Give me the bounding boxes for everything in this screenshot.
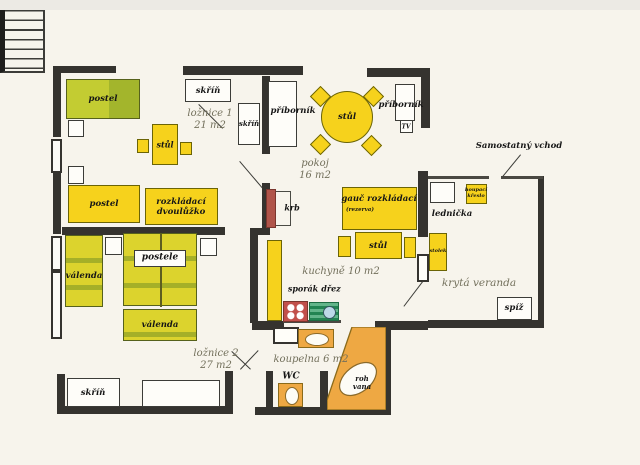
label-skrin-bottom: skříň xyxy=(81,388,106,398)
label-postel-1: postel xyxy=(89,94,118,104)
wall-3 xyxy=(51,139,62,173)
wall-1 xyxy=(53,66,116,73)
double-bed-postele-divider xyxy=(160,234,162,307)
wall-16 xyxy=(250,230,258,323)
corner-bath-host xyxy=(327,327,386,410)
floor-plan: postelskříňložnice 121 m2skříňpříborníks… xyxy=(0,0,640,465)
veranda-door-leaf xyxy=(417,254,429,282)
fireplace-krb xyxy=(266,189,276,228)
wall-5 xyxy=(51,236,62,271)
bathroom-door-leaf xyxy=(273,327,299,344)
toilet-bowl xyxy=(278,383,303,407)
label-stul-loznice1: stůl xyxy=(156,140,173,149)
stove-sporak xyxy=(283,301,308,322)
chair-1 xyxy=(137,139,149,153)
kitchen-counter xyxy=(267,240,282,321)
scan-edge-strip xyxy=(0,0,640,10)
label-postel-2: postel xyxy=(90,199,119,209)
nightstand-2 xyxy=(68,166,84,184)
wall-9 xyxy=(225,371,233,414)
label-sporak: sporák xyxy=(288,284,318,293)
label-rezerva: (rezerva) xyxy=(346,207,374,213)
label-pribornik-2: příborník xyxy=(378,100,423,110)
wall-2 xyxy=(53,66,61,137)
wall-28 xyxy=(501,176,543,179)
chair-diamond-3 xyxy=(310,134,331,155)
entrance-arrow xyxy=(502,154,521,177)
label-stul-round: stůl xyxy=(338,112,356,122)
washbasin-bowl xyxy=(305,333,329,346)
double-bed-postele xyxy=(123,233,197,306)
nightstand-3 xyxy=(105,237,122,255)
wall-22 xyxy=(418,171,428,237)
wall-27 xyxy=(428,176,489,179)
label-wc: WC xyxy=(282,372,299,383)
hall-kitchen-door-swing xyxy=(239,161,263,189)
label-kryta-veranda: krytá veranda xyxy=(442,277,516,289)
label-koupelna: koupelna 6 m2 xyxy=(273,354,348,366)
chair-3 xyxy=(338,236,351,257)
label-stul-living: stůl xyxy=(369,241,387,251)
label-pribornik-1: příborník xyxy=(270,106,315,116)
label-houpaci: houpacíkřeslo xyxy=(465,188,487,200)
storage-box xyxy=(142,380,220,407)
label-tv: TV xyxy=(401,123,410,130)
label-skrin-vertical: skříň xyxy=(239,120,259,128)
label-pokoj: pokoj16 m2 xyxy=(299,158,331,182)
sink-drez xyxy=(309,302,339,321)
nightstand-4 xyxy=(200,238,217,256)
label-drez: dřez xyxy=(321,284,340,293)
wall-10 xyxy=(183,66,303,75)
label-lednicka: lednička xyxy=(432,209,473,219)
label-samostatny-vchod: Samostatný vchod xyxy=(476,141,562,151)
label-rozkladaci: rozkládacídvoulůžko xyxy=(156,197,205,217)
corner-bath-vana xyxy=(327,327,386,410)
label-krb: krb xyxy=(284,203,299,212)
label-valenda-left: válenda xyxy=(66,271,103,281)
label-gauc: gauč rozkládací xyxy=(341,194,416,204)
veranda-door-swing xyxy=(403,281,423,307)
fridge-lednicka xyxy=(430,182,455,203)
label-kuchyne: kuchyně 10 m2 xyxy=(302,266,379,278)
label-spiz: spíž xyxy=(505,303,524,313)
label-valenda-bottom: válenda xyxy=(142,320,179,330)
wall-23 xyxy=(538,176,544,327)
chair-4 xyxy=(404,237,416,258)
wall-6 xyxy=(51,271,62,339)
label-skrin-top: skříň xyxy=(196,86,221,96)
toilet-bowl-bowl xyxy=(285,387,299,405)
label-loznice-2: ložnice 227 m2 xyxy=(193,348,238,372)
wall-8 xyxy=(57,406,233,414)
wall-25 xyxy=(266,371,273,412)
wall-24 xyxy=(428,320,544,328)
staircase xyxy=(0,0,45,73)
label-stolek: stolek xyxy=(429,249,446,255)
chair-diamond-4 xyxy=(361,135,382,156)
label-postele: postele xyxy=(142,253,178,264)
wall-12 xyxy=(421,68,430,128)
label-roh-vana: rohvana xyxy=(353,375,371,392)
label-loznice-1: ložnice 121 m2 xyxy=(187,108,232,132)
sink-drez-basin xyxy=(323,306,336,319)
wall-4 xyxy=(53,173,61,234)
nightstand-1 xyxy=(68,120,84,137)
chair-2 xyxy=(180,142,192,155)
